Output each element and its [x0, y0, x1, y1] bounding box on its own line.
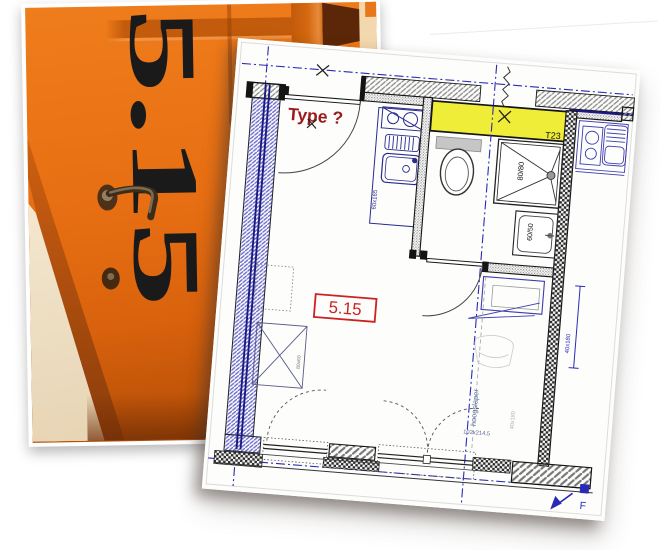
svg-text:Type ?: Type ? — [287, 104, 344, 128]
svg-text:F: F — [579, 500, 586, 512]
svg-text:80x60: 80x60 — [296, 355, 303, 369]
svg-text:60/50: 60/50 — [527, 223, 535, 241]
svg-text:T23: T23 — [545, 130, 561, 141]
svg-text:5.15: 5.15 — [328, 298, 363, 320]
svg-text:80/80: 80/80 — [515, 161, 525, 180]
